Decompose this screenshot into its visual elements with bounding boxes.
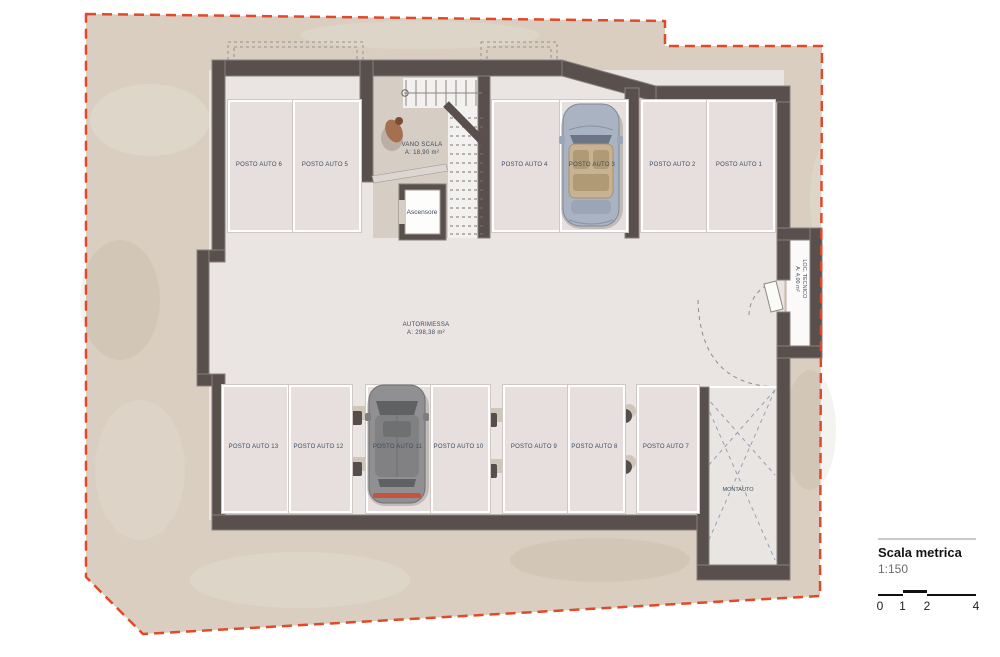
scale-bar — [878, 590, 976, 596]
floor-plan-page: AUTORIMESSA A: 298,38 m² VANO SCALA A: 1… — [0, 0, 1000, 657]
parking-stall — [431, 385, 490, 513]
scale-ticks: 0 1 2 4 — [878, 599, 976, 613]
legend-ratio: 1:150 — [878, 562, 976, 576]
parking-stall — [637, 385, 699, 513]
legend-divider — [878, 538, 976, 540]
parking-stall — [568, 385, 625, 513]
elevator-cab — [405, 190, 440, 234]
elevator-door-gap — [399, 200, 405, 224]
scale-tick: 4 — [973, 599, 980, 613]
scale-bar-segment — [903, 590, 928, 593]
scale-bar-segment — [927, 594, 976, 597]
parking-stall — [707, 100, 775, 232]
parking-stall — [641, 100, 708, 232]
scale-tick: 2 — [924, 599, 931, 613]
parking-stall — [289, 385, 352, 513]
scale-tick: 1 — [899, 599, 906, 613]
scale-tick: 0 — [877, 599, 884, 613]
parking-stall — [492, 100, 561, 232]
parking-stall — [228, 100, 294, 232]
scale-legend: Scala metrica 1:150 0 1 2 4 — [878, 538, 976, 613]
parking-stall — [293, 100, 361, 232]
legend-title: Scala metrica — [878, 545, 976, 560]
parking-stall — [503, 385, 569, 513]
scale-bar-segment — [878, 594, 903, 597]
plan-drawing-svg — [0, 0, 1000, 657]
parking-stall — [222, 385, 289, 513]
